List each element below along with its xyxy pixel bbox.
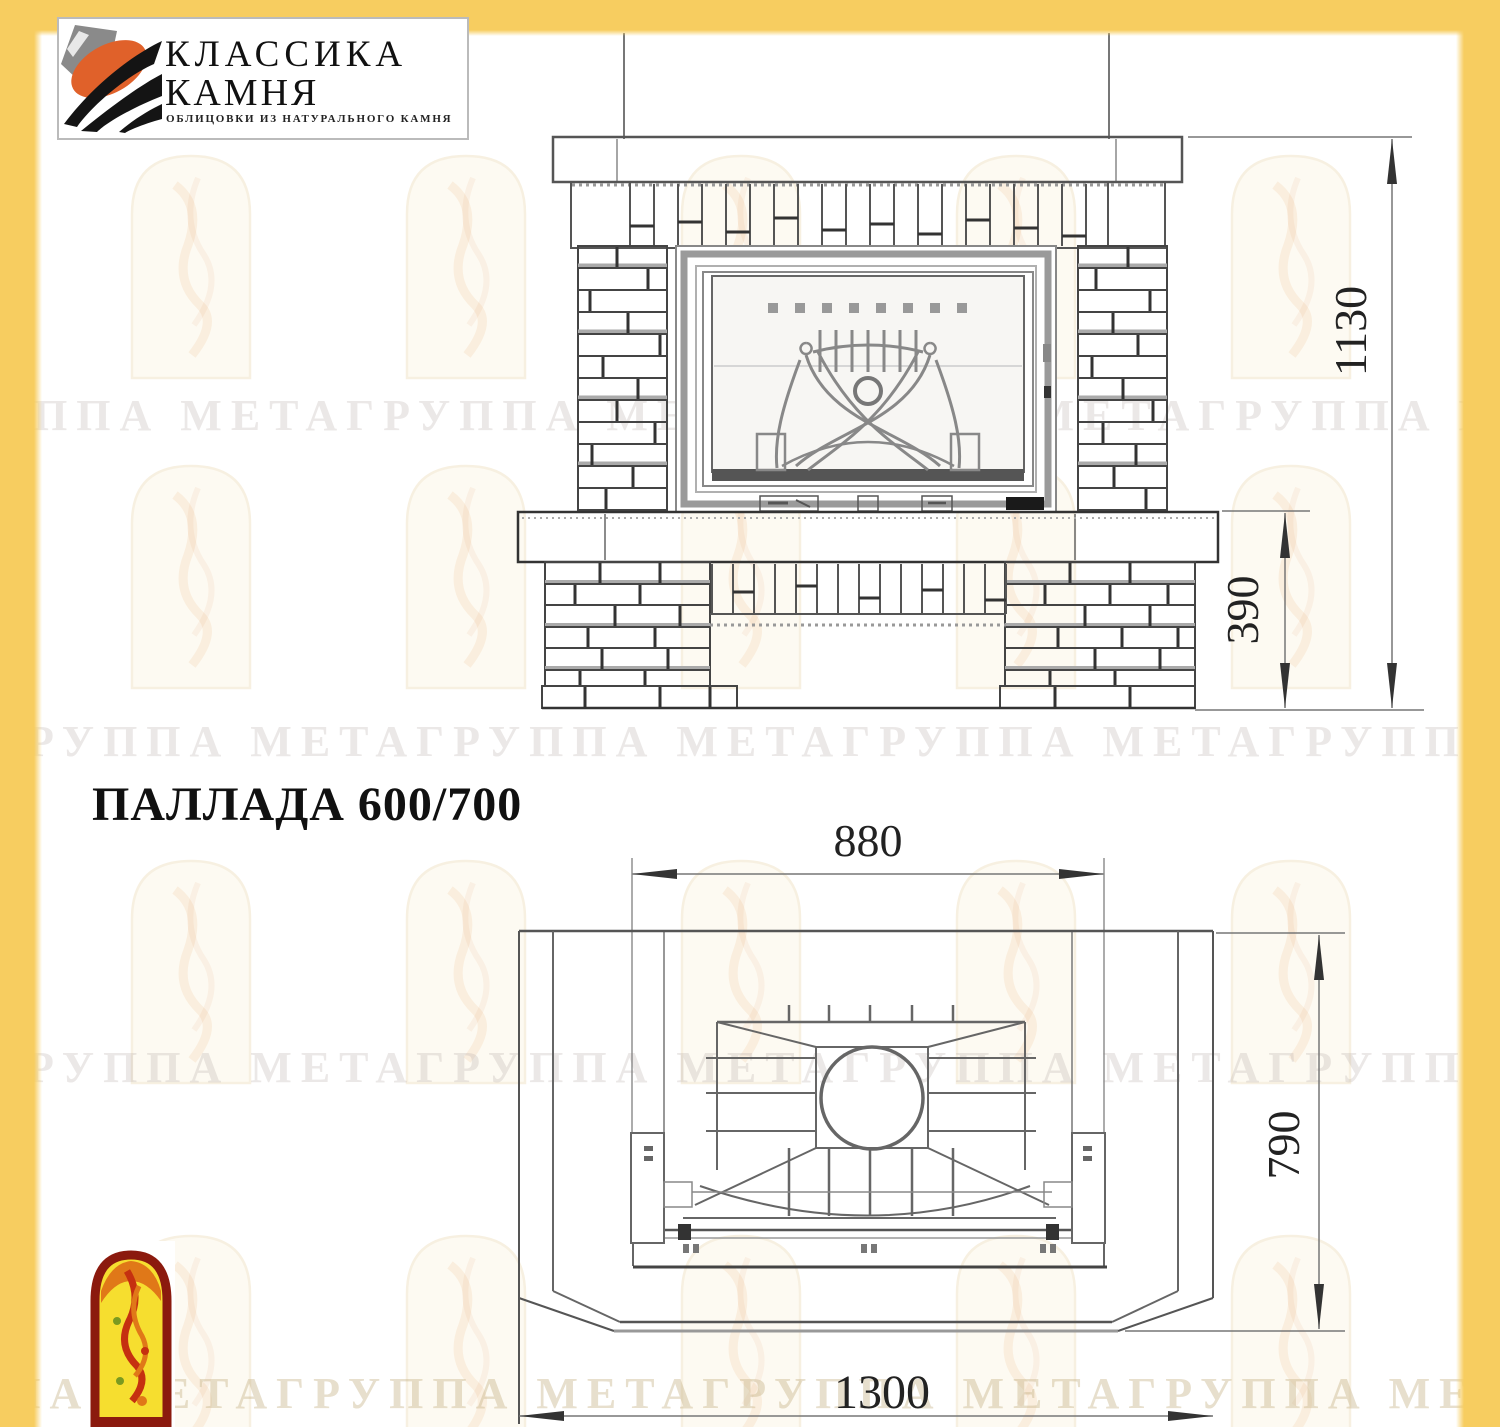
svg-text:ПАЛЛАДА 600/700: ПАЛЛАДА 600/700 <box>92 778 522 831</box>
svg-text:1300: 1300 <box>834 1366 930 1419</box>
svg-text:790: 790 <box>1258 1111 1309 1180</box>
svg-text:880: 880 <box>834 815 903 866</box>
svg-text:1130: 1130 <box>1325 286 1376 376</box>
svg-text:390: 390 <box>1217 576 1268 645</box>
